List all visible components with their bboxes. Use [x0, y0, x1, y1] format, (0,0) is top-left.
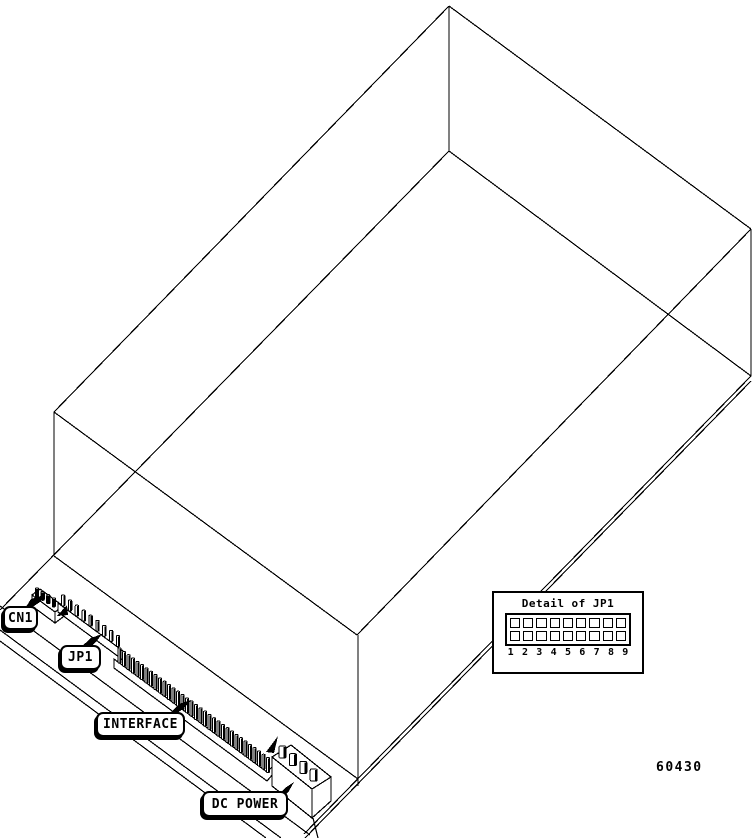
jumper-position — [576, 618, 586, 628]
jumper-pin-number: 7 — [591, 647, 602, 658]
jumper-pin-number: 3 — [534, 647, 545, 658]
jumper-pin-number: 2 — [519, 647, 530, 658]
jumper-position — [550, 618, 560, 628]
jumper-grid — [505, 613, 631, 646]
jumper-pin-number: 4 — [548, 647, 559, 658]
figure-canvas: CN1 JP1 INTERFACE DC POWER Detail of JP1… — [0, 0, 752, 838]
jumper-position — [603, 618, 613, 628]
dc-power-label-text: DC POWER — [212, 797, 279, 812]
jumper-position — [510, 618, 520, 628]
jumper-position — [563, 618, 573, 628]
jumper-pin-number: 1 — [505, 647, 516, 658]
jumper-pin-number: 6 — [577, 647, 588, 658]
cn1-label-text: CN1 — [8, 611, 33, 626]
jumper-position — [616, 618, 626, 628]
jp1-detail-inset: Detail of JP1 123456789 — [492, 591, 644, 674]
jumper-position — [536, 631, 546, 641]
cn1-label: CN1 — [3, 606, 38, 630]
interface-pin1-arrow-icon — [266, 736, 278, 753]
jumper-position — [563, 631, 573, 641]
interface-label: INTERFACE — [96, 712, 185, 737]
jumper-pin-number: 5 — [562, 647, 573, 658]
jumper-pin-number: 8 — [605, 647, 616, 658]
jp1-label: JP1 — [60, 645, 101, 670]
jumper-position — [616, 631, 626, 641]
dc-power-label: DC POWER — [202, 791, 288, 817]
jumper-position — [589, 631, 599, 641]
jumper-pin-numbers: 123456789 — [505, 647, 631, 658]
jumper-position — [550, 631, 560, 641]
jumper-pin-number: 9 — [620, 647, 631, 658]
figure-number: 60430 — [656, 760, 703, 775]
jumper-position — [523, 631, 533, 641]
jumper-position — [589, 618, 599, 628]
jumper-position — [536, 618, 546, 628]
jumper-position — [523, 618, 533, 628]
jp1-label-text: JP1 — [68, 650, 93, 665]
jumper-position — [510, 631, 520, 641]
jp1-detail-title: Detail of JP1 — [494, 597, 642, 610]
interface-label-text: INTERFACE — [103, 717, 178, 732]
jumper-position — [603, 631, 613, 641]
jumper-position — [576, 631, 586, 641]
